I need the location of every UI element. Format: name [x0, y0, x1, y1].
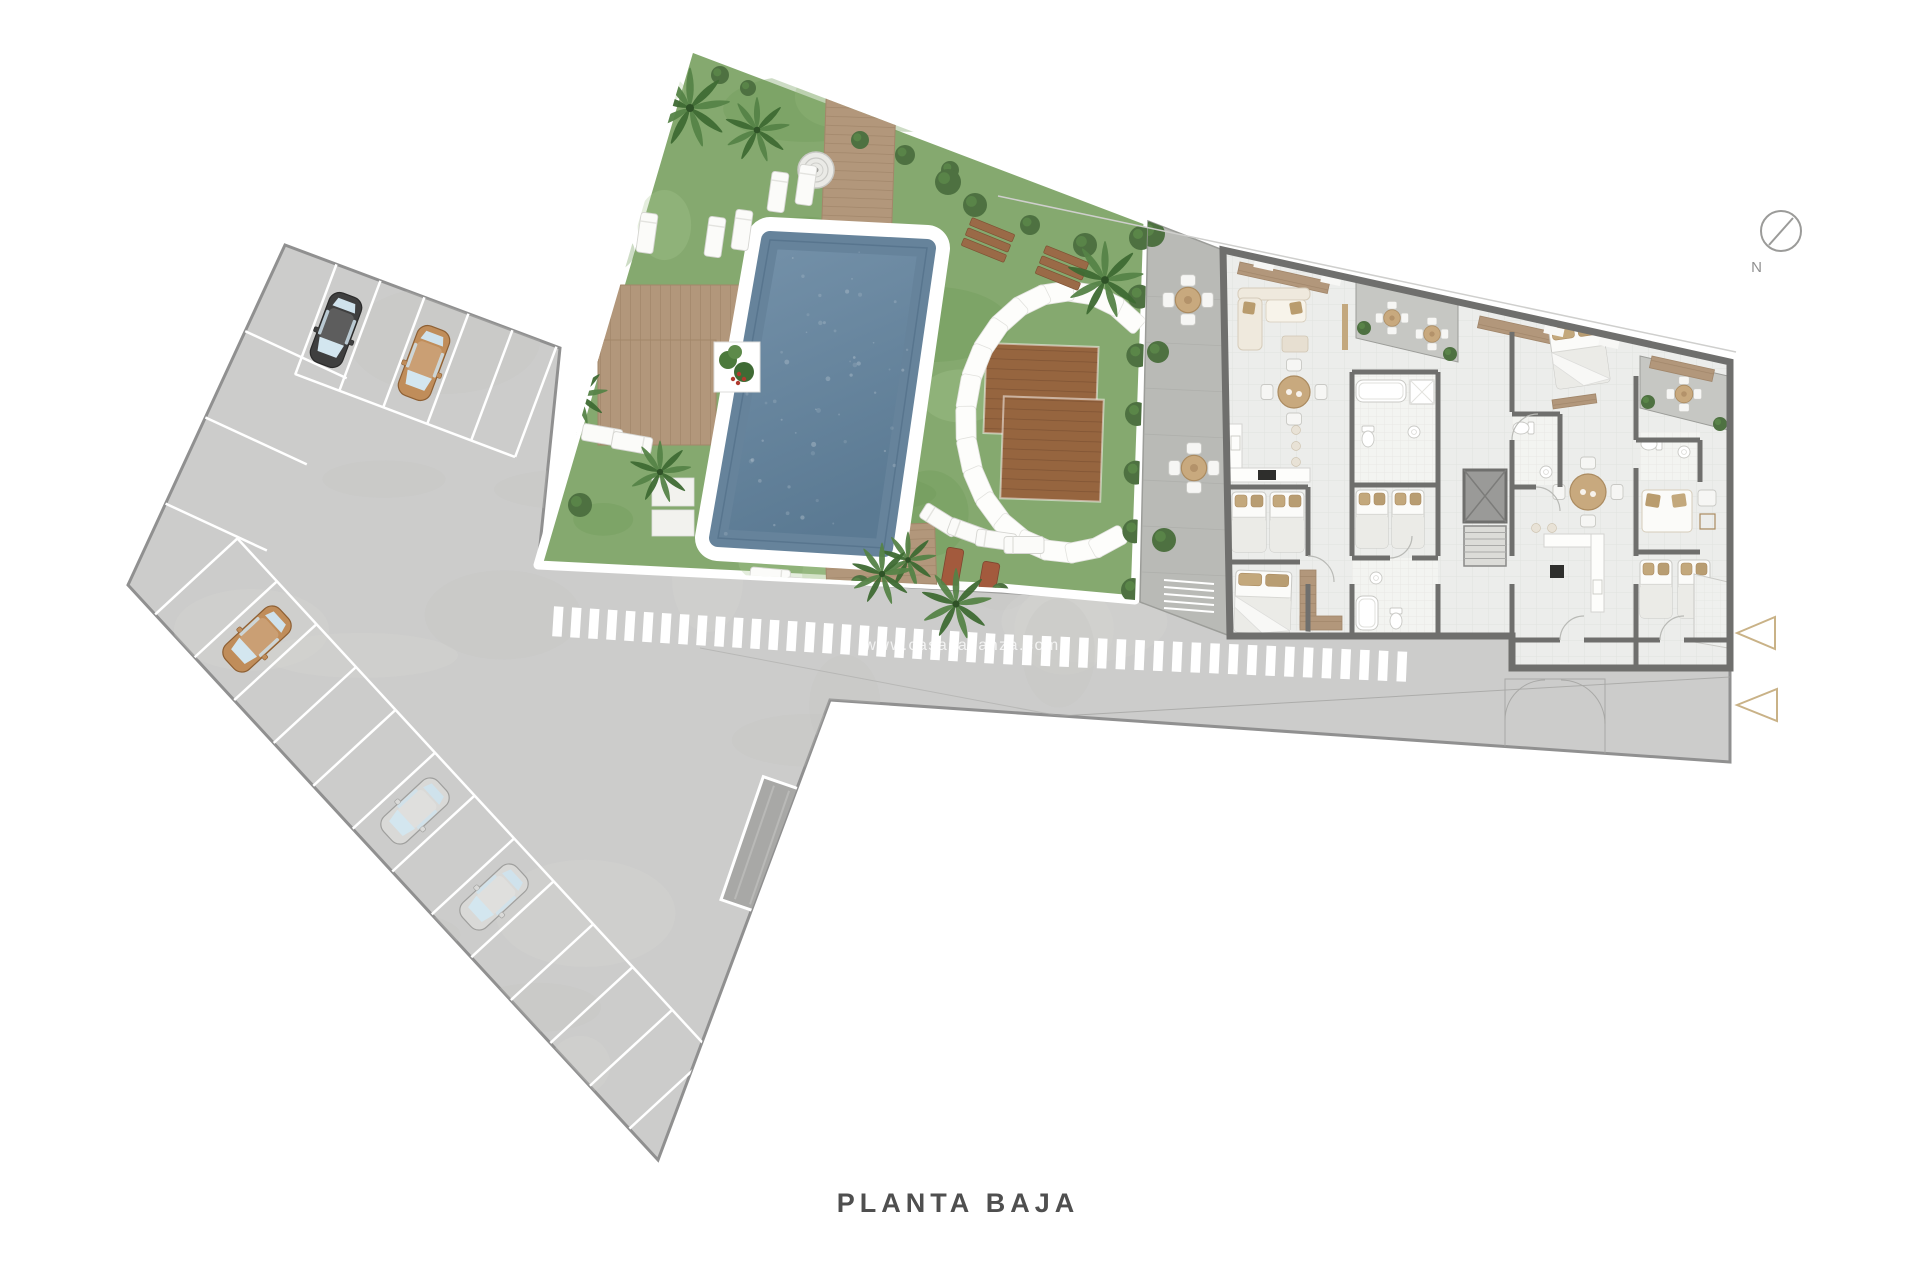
crosswalk-stripe [840, 624, 851, 655]
crosswalk-stripe [1359, 650, 1370, 680]
bush-highlight [576, 191, 587, 202]
cooktop [1258, 470, 1276, 480]
crosswalk-stripe [1265, 646, 1276, 676]
crosswalk-stripe [1172, 642, 1183, 672]
bush-highlight [1445, 349, 1451, 355]
bush [591, 84, 613, 106]
bush-highlight [1359, 323, 1365, 329]
bathtub [1356, 380, 1406, 402]
hedge-highlight [1125, 581, 1135, 591]
pavement-texture [322, 460, 445, 497]
bush-highlight [966, 196, 977, 207]
pavement-texture [1488, 948, 1653, 1029]
crosswalk-stripe [786, 621, 797, 652]
bed [1232, 492, 1266, 552]
hedge-highlight [1133, 229, 1143, 239]
crosswalk-stripe [750, 619, 761, 650]
bar-stool [1548, 524, 1557, 533]
entrance-arrow-icon [1737, 689, 1777, 721]
crosswalk-stripe [1378, 651, 1389, 681]
bush-highlight [742, 82, 749, 89]
sink [1540, 466, 1552, 478]
rear-patio-tile [1694, 574, 1728, 648]
crosswalk-stripe [570, 607, 581, 638]
crosswalk-stripe [624, 611, 635, 642]
hedge-highlight [1132, 288, 1142, 298]
crosswalk-stripe [768, 620, 779, 651]
planter-flower [737, 372, 741, 376]
bush [573, 188, 597, 212]
pavement-texture [550, 1036, 611, 1095]
crosswalk-stripe [732, 617, 743, 648]
crosswalk-stripe [714, 616, 725, 647]
coffee-table [1282, 336, 1308, 352]
bar-stool [1292, 442, 1301, 451]
cushion [1645, 493, 1661, 508]
compass-icon [1761, 211, 1801, 251]
bush-highlight [571, 496, 582, 507]
crosswalk-stripe [696, 615, 707, 646]
bed [1392, 490, 1424, 548]
crosswalk-stripe [1303, 647, 1314, 677]
hedge-highlight [1126, 522, 1136, 532]
crosswalk-stripe [1078, 637, 1089, 667]
armchair [1698, 490, 1716, 506]
sink [1370, 572, 1382, 584]
hedge-highlight [1128, 464, 1138, 474]
bush-highlight [1715, 419, 1721, 425]
bed [1640, 560, 1672, 618]
crosswalk-stripe [588, 608, 599, 639]
pavement-texture [793, 964, 935, 1032]
bar-stool [1292, 458, 1301, 467]
sink [1678, 446, 1690, 458]
crosswalk-stripe [642, 612, 653, 643]
entrance-arrows [1737, 617, 1777, 721]
crosswalk-stripe [1396, 651, 1407, 681]
pergola-deck [1000, 396, 1103, 501]
floor-title: PLANTA BAJA [837, 1188, 1080, 1218]
cushion [1671, 493, 1687, 508]
crosswalk-stripe [1115, 639, 1126, 669]
toilet [1513, 422, 1534, 434]
crosswalk-stripe [1228, 644, 1239, 674]
crosswalk-stripe [1097, 638, 1108, 668]
bush-highlight [1150, 344, 1160, 354]
planter-flower [736, 381, 740, 385]
toilet [1390, 608, 1402, 629]
bed [1270, 492, 1304, 552]
cooktop [1550, 565, 1564, 578]
bush-highlight [1643, 397, 1649, 403]
crosswalk-stripe [822, 623, 833, 654]
crosswalk-stripe [1321, 648, 1332, 678]
watermark: www.casasalianza.com [863, 637, 1059, 654]
site-plan: N www.casasalianza.com PLANTA BAJA [0, 0, 1920, 1280]
entrance-arrow-icon [1737, 617, 1775, 649]
bush-highlight [853, 133, 861, 141]
bush-highlight [1023, 218, 1032, 227]
bush-highlight [558, 422, 568, 432]
crosswalk-stripe [1153, 641, 1164, 671]
pavement-texture [475, 983, 601, 1032]
floor-plan-canvas: N www.casasalianza.com PLANTA BAJA [0, 0, 1920, 1280]
pavement-texture [777, 938, 900, 1003]
bush-highlight [938, 172, 950, 184]
bush-highlight [1155, 531, 1166, 542]
bed [1234, 570, 1292, 634]
crosswalk-stripe [660, 613, 671, 644]
planter-plant [728, 345, 742, 359]
crosswalk-stripe [1284, 646, 1295, 676]
bathtub [1356, 596, 1378, 630]
pavement-texture [809, 655, 880, 755]
crosswalk-stripe [1340, 649, 1351, 679]
lawn-texture [968, 126, 1038, 154]
bush-highlight [898, 148, 907, 157]
bush-highlight [562, 310, 574, 322]
crosswalk-stripe [1247, 645, 1258, 675]
sink [1408, 426, 1420, 438]
bar-stool [1292, 426, 1301, 435]
hedge-highlight [1129, 405, 1139, 415]
bush-highlight [713, 68, 721, 76]
crosswalk-stripe [552, 606, 563, 637]
sun-lounger [1004, 537, 1044, 554]
toilet [1362, 426, 1374, 447]
pavement-texture [878, 724, 954, 774]
kitchen-counter [1591, 534, 1604, 612]
crosswalk-stripe [1209, 643, 1220, 673]
bar-stool [1532, 524, 1541, 533]
crosswalk-stripe [1134, 640, 1145, 670]
hedge-highlight [1130, 346, 1140, 356]
crosswalk-stripe [1190, 642, 1201, 672]
crosswalk-stripe [804, 622, 815, 653]
crosswalk-stripe [1059, 637, 1070, 667]
lawn-texture [506, 110, 641, 187]
bush-highlight [1076, 236, 1087, 247]
planter-flower [742, 377, 746, 381]
compass-needle [1769, 218, 1793, 245]
crosswalk-stripe [606, 610, 617, 641]
bush-highlight [594, 87, 604, 97]
bed [1356, 490, 1388, 548]
pavement-texture [374, 1064, 496, 1113]
crosswalk-stripe [678, 614, 689, 645]
patio-slab [652, 510, 694, 536]
bush [559, 307, 585, 333]
planter-flower [731, 377, 735, 381]
compass-label: N [1751, 259, 1763, 276]
tv-sideboard [1342, 304, 1348, 350]
